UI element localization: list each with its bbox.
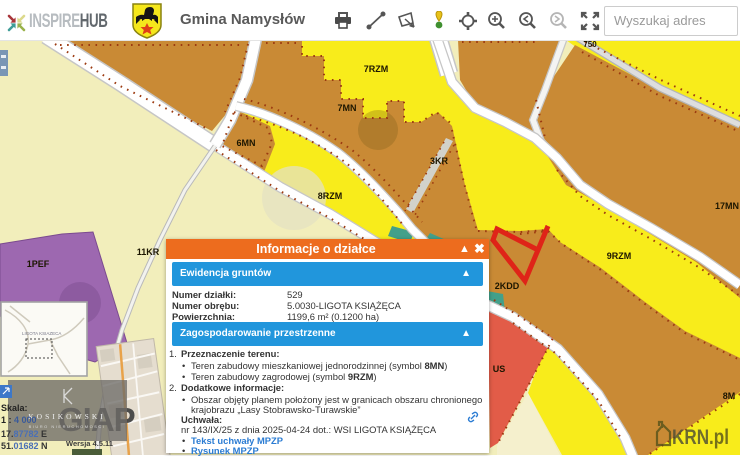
svg-text:US: US	[493, 364, 506, 374]
svg-text:8M: 8M	[723, 391, 736, 401]
svg-text:KRN.pl: KRN.pl	[672, 426, 729, 449]
svg-text:17.87782 E: 17.87782 E	[1, 429, 47, 439]
svg-text:LIGOTA KSIAZECA: LIGOTA KSIAZECA	[22, 331, 61, 336]
svg-text:1PEF: 1PEF	[27, 259, 50, 269]
svg-text:1 : 4 000: 1 : 4 000	[1, 415, 37, 425]
svg-text:3KR: 3KR	[430, 156, 449, 166]
svg-text:Skala:: Skala:	[1, 403, 28, 413]
svg-text:9RZM: 9RZM	[607, 251, 632, 261]
svg-text:7MN: 7MN	[337, 103, 356, 113]
svg-text:11KR: 11KR	[137, 247, 160, 257]
svg-text:8RZM: 8RZM	[318, 191, 343, 201]
svg-text:Wersja 4.5.11: Wersja 4.5.11	[66, 439, 113, 448]
svg-text:KOSIKOWSKI: KOSIKOWSKI	[28, 412, 106, 421]
svg-text:6MN: 6MN	[236, 138, 255, 148]
svg-text:51.01682 N: 51.01682 N	[1, 441, 48, 451]
svg-text:2KDD: 2KDD	[495, 281, 520, 291]
svg-text:7RZM: 7RZM	[364, 64, 389, 74]
svg-text:750: 750	[583, 40, 597, 49]
svg-text:17MN: 17MN	[715, 201, 739, 211]
